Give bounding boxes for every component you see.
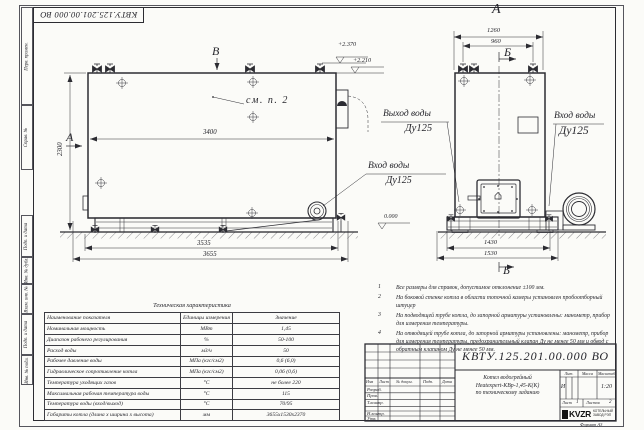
- note-item: 1 Все размеры для справок, допустимое от…: [378, 284, 614, 292]
- strip-cell-inv-podl: Инв. № подл.: [21, 355, 33, 385]
- strip-cell-podp-data-2: Подп. и дата: [21, 314, 33, 355]
- strip-cell-sprav-no: Справ. №: [21, 105, 33, 170]
- dim-3535: 3535: [197, 241, 211, 248]
- kvzr-logo-subtitle: КОТЕЛЬНЫЙ ЗАВОД РЭП: [593, 410, 613, 417]
- see-note-label: см. п. 2: [246, 96, 289, 106]
- top-designation: КВТУ.125.201.00.000 ВО: [40, 10, 137, 20]
- note-number: 3: [378, 312, 396, 328]
- dim-960: 960: [491, 39, 501, 46]
- section-mark-b-top: Б: [504, 46, 511, 58]
- top-designation-box: КВТУ.125.201.00.000 ВО: [33, 7, 144, 23]
- table-row: Температура воды (вход/выход)°С70/95: [45, 399, 340, 410]
- table-row: Габариты котла (длина х ширина х высота)…: [45, 410, 340, 421]
- note-text: Все размеры для справок, допустимое откл…: [396, 284, 614, 292]
- tb-header-ndokum: № докум.: [396, 380, 413, 384]
- tb-row-prov: Пров.: [367, 394, 378, 399]
- elevation-2210: +2.210: [353, 58, 371, 64]
- tech-table-header-row: Наименование показателя Единицы измерени…: [45, 313, 340, 324]
- table-row: Диапазон рабочего регулирования%50-100: [45, 335, 340, 346]
- notes-list: 1 Все размеры для справок, допустимое от…: [378, 284, 614, 356]
- water-inlet-dn-front: Ду125: [559, 126, 589, 138]
- tech-table-title: Техническая характеристика: [44, 302, 340, 309]
- tb-scale-header: Масштаб: [597, 372, 616, 376]
- tb-lit-value: И: [560, 384, 566, 390]
- water-outlet-label: Выход воды: [383, 110, 431, 120]
- format-label: Формат А3: [580, 423, 602, 428]
- note-item: 2 На боковой стенке котла в области топо…: [378, 294, 614, 310]
- tb-scale-value: 1:20: [597, 384, 616, 390]
- tb-sheets-value: 2: [609, 400, 612, 405]
- note-text: На боковой стенке котла в области топочн…: [396, 294, 614, 310]
- note-item: 3 На подводящей трубе котла, до запорной…: [378, 312, 614, 328]
- dim-2300: 2300: [57, 142, 64, 156]
- table-row: Рабочее давление водыМПа (кгс/см2)0,6 (6…: [45, 356, 340, 367]
- dim-1430: 1430: [484, 240, 497, 247]
- dim-3400: 3400: [203, 130, 217, 137]
- section-mark-b-side: В: [212, 45, 219, 57]
- kvzr-logo-text: KVZR: [569, 409, 591, 419]
- product-name-line3: по техническому заданию: [455, 391, 560, 397]
- tb-sheets-label: Листов: [586, 401, 600, 405]
- note-number: 1: [378, 284, 396, 292]
- kvzr-logo: KVZR КОТЕЛЬНЫЙ ЗАВОД РЭП: [562, 408, 615, 420]
- section-mark-a-side: А: [66, 131, 73, 143]
- note-text: На подводящей трубе котла, до запорной а…: [396, 312, 614, 328]
- tb-row-razrab: Разраб.: [367, 388, 382, 393]
- product-name-line1: Котел водогрейный: [455, 376, 560, 382]
- tech-col-units: Единицы измерения: [181, 313, 233, 324]
- tb-sheet-value: 1: [576, 400, 579, 405]
- strip-cell-perv-primen: Перв. примен.: [21, 7, 33, 105]
- tb-header-list: Лист: [379, 380, 389, 384]
- tech-table: Наименование показателя Единицы измерени…: [44, 312, 340, 421]
- elevation-zero: 0.000: [384, 214, 398, 220]
- tb-header-izm: Изм: [366, 380, 373, 384]
- tech-col-name: Наименование показателя: [45, 313, 181, 324]
- water-inlet-dn-side: Ду125: [386, 176, 412, 186]
- tb-sheet-label: Лист: [562, 401, 572, 405]
- drawing-sheet: КВТУ.125.201.00.000 ВО Перв. примен. Спр…: [0, 0, 644, 430]
- table-row: Максимальная рабочая температура воды°С1…: [45, 388, 340, 399]
- water-outlet-dn: Ду125: [405, 124, 432, 135]
- dim-1260: 1260: [487, 28, 500, 35]
- dim-1530: 1530: [484, 251, 497, 258]
- title-block-designation: КВТУ.125.201.00.000 ВО: [455, 350, 616, 362]
- tb-header-data: Дата: [442, 380, 452, 384]
- view-a-title: А: [492, 3, 501, 17]
- section-mark-b-bottom: Б: [503, 264, 510, 276]
- note-number: 2: [378, 294, 396, 310]
- tb-row-utv: Утв.: [367, 417, 377, 422]
- tb-mass-header: Масса: [578, 372, 597, 376]
- tech-col-value: Значение: [233, 313, 340, 324]
- table-row: Температура уходящих газов°Сне более 220: [45, 378, 340, 389]
- strip-cell-inv-dubl: Инв. № дубл.: [21, 257, 33, 284]
- tb-header-podp: Подп.: [423, 380, 433, 384]
- tb-lit-header: Лит.: [560, 372, 578, 376]
- table-row: Номинальная мощностьМВт1,45: [45, 324, 340, 335]
- water-inlet-label-front: Вход воды: [554, 112, 595, 122]
- product-name-line2: Heatexpert-КВр-1,45-К(К): [455, 384, 560, 390]
- kvzr-logo-mark: [562, 410, 568, 419]
- table-row: Гидравлическое сопротивление котлаМПа (к…: [45, 367, 340, 378]
- water-inlet-label-side: Вход воды: [368, 162, 409, 172]
- dim-3655: 3655: [203, 252, 217, 259]
- tb-row-tkontr: Т.контр.: [367, 401, 384, 406]
- note-number: 4: [378, 330, 396, 355]
- elevation-2370: +2.370: [338, 42, 356, 48]
- strip-cell-vzam-inv: Взам. инв. №: [21, 284, 33, 314]
- strip-cell-podp-data-1: Подп. и дата: [21, 215, 33, 257]
- table-row: Расход водым3/ч50: [45, 345, 340, 356]
